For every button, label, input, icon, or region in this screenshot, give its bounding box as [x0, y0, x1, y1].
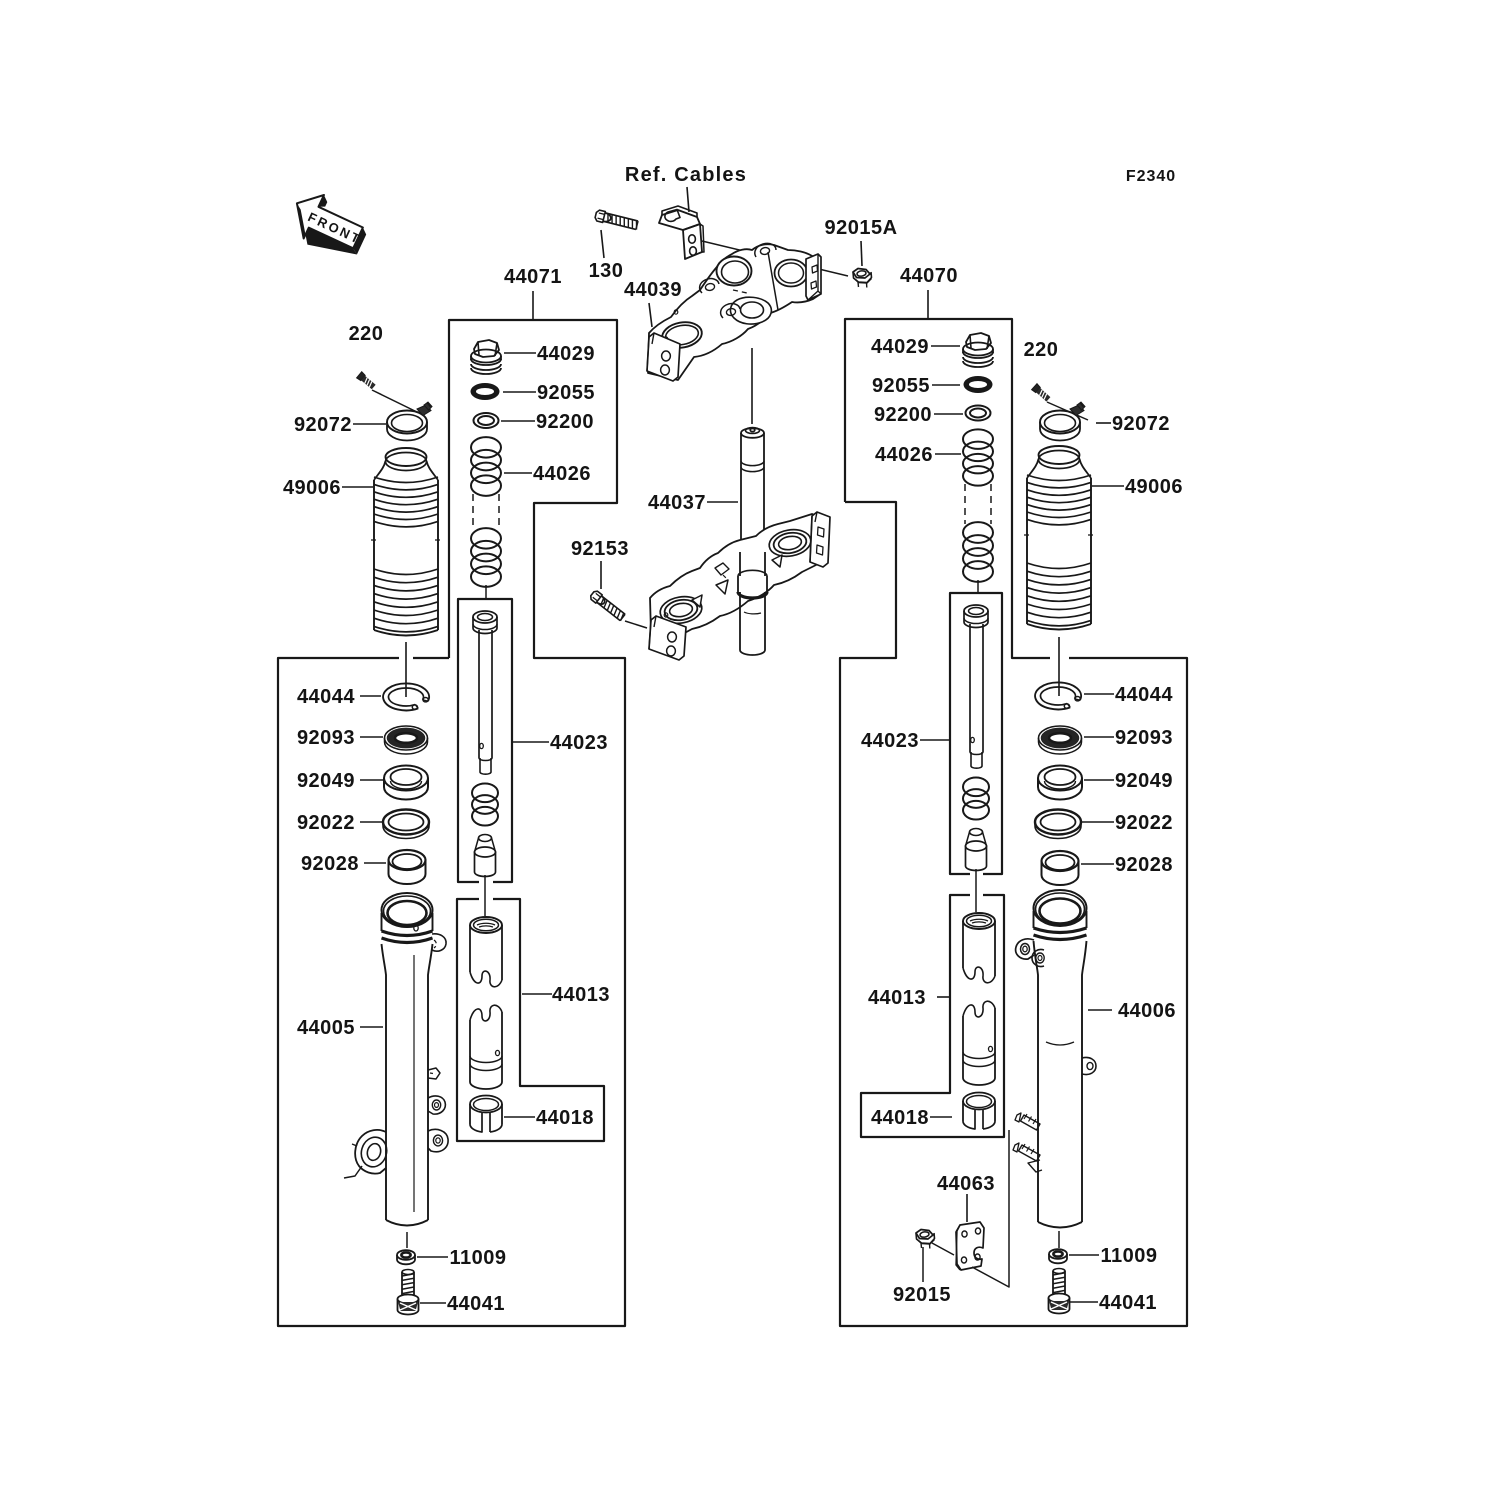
- svg-text:44037: 44037: [648, 492, 706, 514]
- svg-text:44006: 44006: [1118, 1000, 1176, 1022]
- svg-text:44044: 44044: [297, 686, 355, 708]
- svg-text:44026: 44026: [533, 463, 591, 485]
- svg-text:92028: 92028: [301, 853, 359, 875]
- svg-text:44044: 44044: [1115, 684, 1173, 706]
- svg-text:44063: 44063: [937, 1173, 995, 1195]
- svg-text:92049: 92049: [297, 770, 355, 792]
- svg-text:220: 220: [1024, 339, 1059, 361]
- svg-text:44013: 44013: [552, 984, 610, 1006]
- svg-text:92055: 92055: [537, 382, 595, 404]
- svg-text:44018: 44018: [871, 1107, 929, 1129]
- svg-text:44041: 44041: [1099, 1292, 1157, 1314]
- svg-text:92072: 92072: [1112, 413, 1170, 435]
- svg-text:92153: 92153: [571, 538, 629, 560]
- svg-text:F2340: F2340: [1126, 168, 1176, 185]
- svg-text:44070: 44070: [900, 265, 958, 287]
- svg-text:92015A: 92015A: [824, 217, 897, 239]
- svg-text:92022: 92022: [1115, 812, 1173, 834]
- svg-text:130: 130: [589, 260, 624, 282]
- svg-text:92055: 92055: [872, 375, 930, 397]
- svg-text:44026: 44026: [875, 444, 933, 466]
- svg-text:44041: 44041: [447, 1293, 505, 1315]
- svg-text:92028: 92028: [1115, 854, 1173, 876]
- svg-text:49006: 49006: [283, 477, 341, 499]
- svg-text:92022: 92022: [297, 812, 355, 834]
- svg-text:92200: 92200: [874, 404, 932, 426]
- svg-text:44039: 44039: [624, 279, 682, 301]
- svg-text:92015: 92015: [893, 1284, 951, 1306]
- svg-text:92049: 92049: [1115, 770, 1173, 792]
- svg-text:Ref. Cables: Ref. Cables: [625, 164, 747, 186]
- svg-text:11009: 11009: [449, 1247, 506, 1269]
- svg-text:44018: 44018: [536, 1107, 594, 1129]
- svg-text:44023: 44023: [550, 732, 608, 754]
- svg-text:92072: 92072: [294, 414, 352, 436]
- svg-text:92093: 92093: [1115, 727, 1173, 749]
- svg-text:44005: 44005: [297, 1017, 355, 1039]
- svg-text:44071: 44071: [504, 266, 562, 288]
- svg-text:44029: 44029: [871, 336, 929, 358]
- svg-text:49006: 49006: [1125, 476, 1183, 498]
- svg-text:92093: 92093: [297, 727, 355, 749]
- svg-text:44029: 44029: [537, 343, 595, 365]
- svg-text:92200: 92200: [536, 411, 594, 433]
- svg-text:11009: 11009: [1100, 1245, 1157, 1267]
- svg-text:220: 220: [349, 323, 384, 345]
- svg-text:44023: 44023: [861, 730, 919, 752]
- svg-text:44013: 44013: [868, 987, 926, 1009]
